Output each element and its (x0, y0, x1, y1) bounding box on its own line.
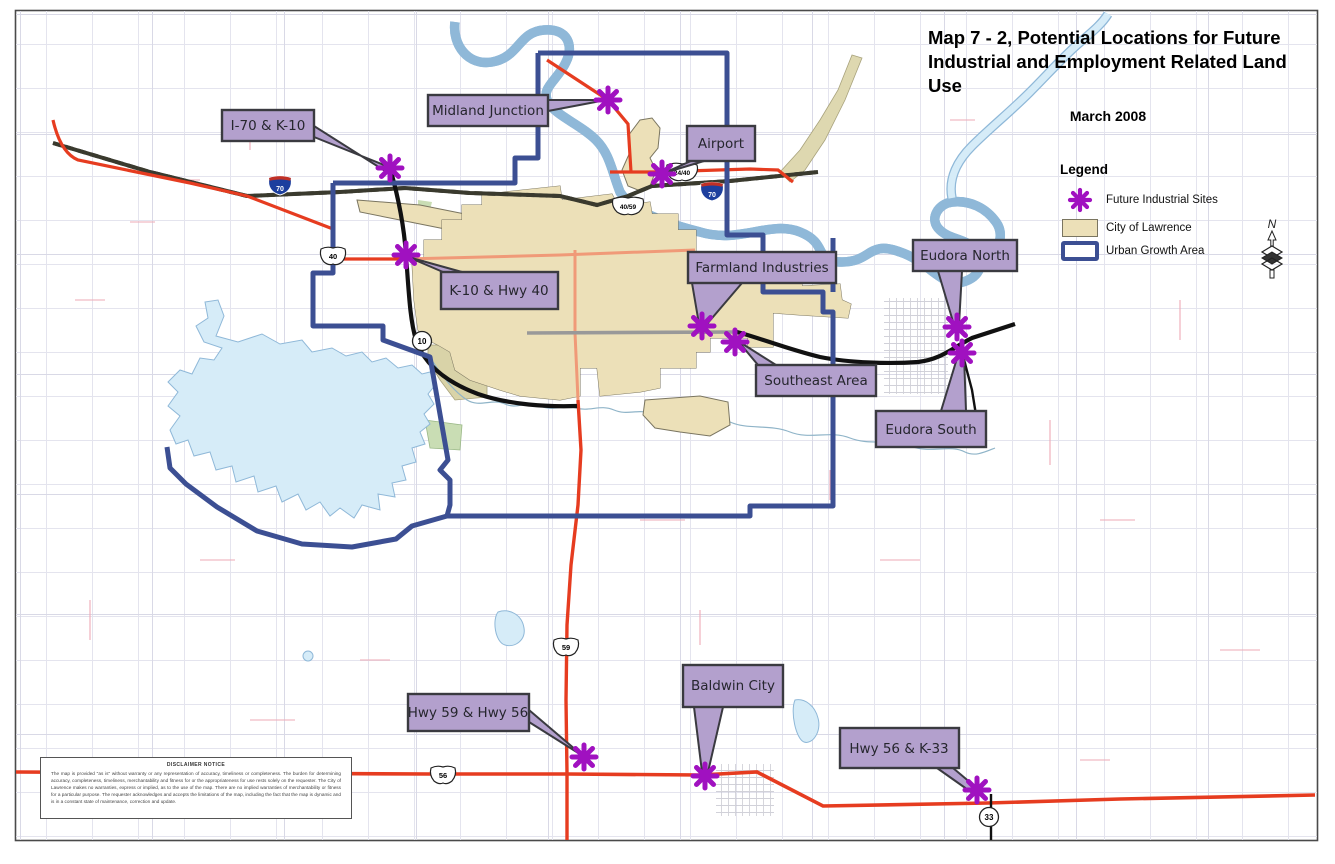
legend-item-city-of-lawrence: City of Lawrence (1060, 219, 1280, 237)
legend-item-industrial-sites: Future Industrial Sites (1060, 185, 1280, 215)
site-marker-hwy56-k33 (965, 778, 989, 802)
map-date: March 2008 (928, 108, 1288, 124)
site-marker-eudora-north (945, 315, 969, 339)
svg-text:Farmland Industries: Farmland Industries (695, 260, 828, 276)
svg-text:Eudora North: Eudora North (920, 248, 1010, 264)
callout-i70-k10: I-70 & K-10 (222, 110, 314, 141)
callout-hwy56-k33: Hwy 56 & K-33 (840, 728, 959, 768)
svg-text:Southeast Area: Southeast Area (764, 373, 868, 389)
city-swatch-icon (1060, 219, 1100, 237)
legend-item-urban-growth-area: Urban Growth Area (1060, 241, 1280, 261)
svg-text:Midland Junction: Midland Junction (432, 103, 544, 119)
svg-text:Baldwin City: Baldwin City (691, 678, 775, 694)
svg-text:10: 10 (418, 337, 427, 346)
site-marker-eudora-south (950, 341, 974, 365)
site-marker-farmland (690, 314, 714, 338)
disclaimer-notice: DISCLAIMER NOTICE The map is provided "a… (40, 757, 352, 819)
site-marker-southeast-area (723, 330, 747, 354)
asterisk-icon (1060, 185, 1100, 215)
title-block: Map 7 - 2, Potential Locations for Futur… (928, 26, 1288, 124)
map-canvas: 70 70 40 24/40 40/59 59 (0, 0, 1335, 864)
svg-text:K-10 & Hwy 40: K-10 & Hwy 40 (449, 283, 548, 299)
svg-text:33: 33 (985, 813, 994, 822)
svg-text:I-70 & K-10: I-70 & K-10 (231, 118, 306, 134)
callout-k10-hwy40: K-10 & Hwy 40 (441, 272, 558, 309)
callout-baldwin-city: Baldwin City (683, 665, 783, 707)
map-content: 70 70 40 24/40 40/59 59 (16, 11, 1317, 841)
svg-text:56: 56 (439, 771, 447, 780)
site-marker-airport (650, 162, 674, 186)
map-page: 70 70 40 24/40 40/59 59 (0, 0, 1335, 864)
legend-heading: Legend (1060, 162, 1280, 177)
legend-label: Urban Growth Area (1100, 245, 1204, 257)
site-marker-midland-junction (596, 88, 620, 112)
us56-shield: 56 (430, 766, 455, 783)
legend-label: Future Industrial Sites (1100, 194, 1218, 206)
us40-shield: 40 (320, 247, 345, 264)
callout-eudora-north: Eudora North (913, 240, 1017, 271)
svg-text:70: 70 (708, 192, 716, 199)
legend-label: City of Lawrence (1100, 222, 1192, 234)
svg-text:Hwy 59 & Hwy 56: Hwy 59 & Hwy 56 (408, 705, 528, 721)
site-marker-baldwin-city (693, 764, 717, 788)
site-marker-hwy59-hwy56 (572, 745, 596, 769)
site-marker-k10-hwy40 (394, 243, 418, 267)
svg-text:59: 59 (562, 643, 570, 652)
svg-text:Eudora South: Eudora South (885, 422, 976, 438)
svg-text:40/59: 40/59 (620, 204, 637, 211)
callout-eudora-south: Eudora South (876, 411, 986, 447)
disclaimer-body: The map is provided "as is" without warr… (51, 770, 341, 805)
callout-midland-junction: Midland Junction (428, 95, 548, 126)
callout-southeast-area: Southeast Area (756, 365, 876, 396)
legend: Legend Future Industrial Sites City of L… (1060, 162, 1280, 265)
map-title: Map 7 - 2, Potential Locations for Futur… (928, 26, 1288, 98)
callout-hwy59-hwy56: Hwy 59 & Hwy 56 (408, 694, 529, 731)
callout-airport: Airport (687, 126, 755, 161)
callout-farmland-industries: Farmland Industries (688, 252, 836, 283)
us59-shield: 59 (553, 638, 578, 655)
svg-text:Hwy 56 & K-33: Hwy 56 & K-33 (849, 741, 948, 757)
eudora-street-grid (884, 298, 948, 394)
k10-shield: 10 (413, 332, 432, 351)
site-marker-i70-k10 (378, 156, 402, 180)
svg-text:70: 70 (276, 186, 284, 193)
us40-59-shield: 40/59 (613, 197, 644, 214)
k33-shield: 33 (980, 808, 999, 827)
pond (303, 651, 313, 661)
svg-text:Airport: Airport (698, 136, 744, 152)
svg-text:40: 40 (329, 252, 337, 261)
uga-swatch-icon (1060, 241, 1100, 261)
disclaimer-heading: DISCLAIMER NOTICE (51, 762, 341, 768)
